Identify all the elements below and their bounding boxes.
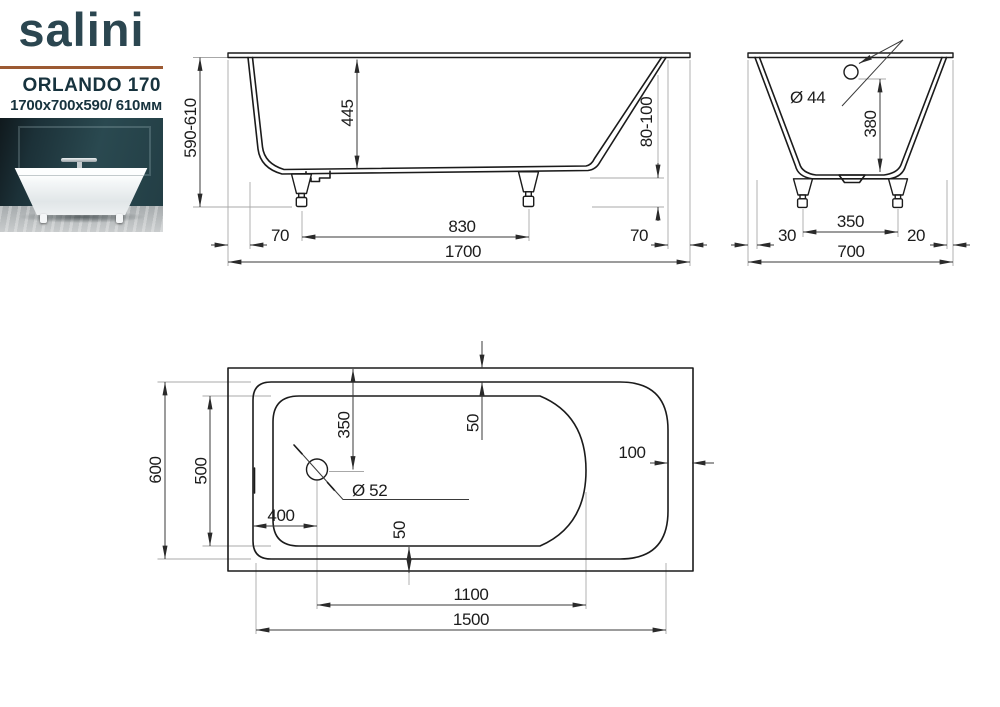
end-view-foot-right (889, 179, 908, 208)
dim-label-rim-gap-bottom: 50 (390, 521, 409, 539)
end-view-foot-left (794, 179, 813, 208)
top-view: 600 500 350 50 100 Ø 52 400 50 1100 (146, 341, 714, 634)
technical-drawing: 590-610 445 80-100 70 830 70 1700 (0, 0, 1000, 707)
product-drawing-page: salini ORLANDO 170 1700x700x590/ 610мм (0, 0, 1000, 707)
dim-label-inner-depth: 445 (338, 99, 357, 126)
dim-label-shell-length: 1500 (453, 610, 489, 629)
dim-label-drain-from-left: 400 (267, 506, 294, 525)
dim-label-right-offset: 20 (907, 226, 925, 245)
side-view-tub-profile (228, 53, 690, 207)
dim-label-rim-gap-top: 50 (464, 414, 483, 432)
end-view-dimensions: Ø 44 380 350 30 20 700 (731, 79, 970, 262)
dim-label-total-height: 590-610 (181, 98, 200, 158)
side-view-dimensions: 590-610 445 80-100 70 830 70 1700 (181, 58, 707, 263)
end-view: Ø 44 380 350 30 20 700 (731, 40, 970, 266)
dim-label-feet-spacing: 830 (448, 217, 475, 236)
end-view-tub-profile (748, 40, 953, 207)
dim-label-left-offset: 70 (271, 226, 289, 245)
dim-label-left-offset: 30 (778, 226, 796, 245)
dim-label-total-width: 700 (837, 242, 864, 261)
top-view-dimensions: 600 500 350 50 100 Ø 52 400 50 1100 (146, 341, 714, 630)
dim-label-shell-width: 600 (146, 456, 165, 483)
dim-label-basin-width: 500 (192, 457, 211, 484)
dim-label-basin-length: 1100 (454, 585, 489, 604)
end-view-overflow-hole (844, 65, 858, 79)
side-view: 590-610 445 80-100 70 830 70 1700 (181, 53, 707, 266)
dim-label-feet-spacing: 350 (837, 212, 864, 231)
top-view-tub-outline (228, 368, 693, 571)
dim-label-right-offset: 70 (630, 226, 648, 245)
dim-label-feet-height: 80-100 (637, 97, 656, 148)
side-view-foot-left (292, 174, 312, 207)
dim-label-drain-diameter: Ø 52 (352, 481, 387, 500)
dim-label-overflow-height: 380 (861, 110, 880, 137)
dim-label-drain-to-end: 350 (335, 411, 354, 438)
side-view-foot-right (519, 172, 539, 207)
dim-label-rim-gap-right: 100 (618, 443, 645, 462)
dim-label-total-length: 1700 (445, 242, 481, 261)
dim-label-overflow-diameter: Ø 44 (790, 88, 825, 107)
